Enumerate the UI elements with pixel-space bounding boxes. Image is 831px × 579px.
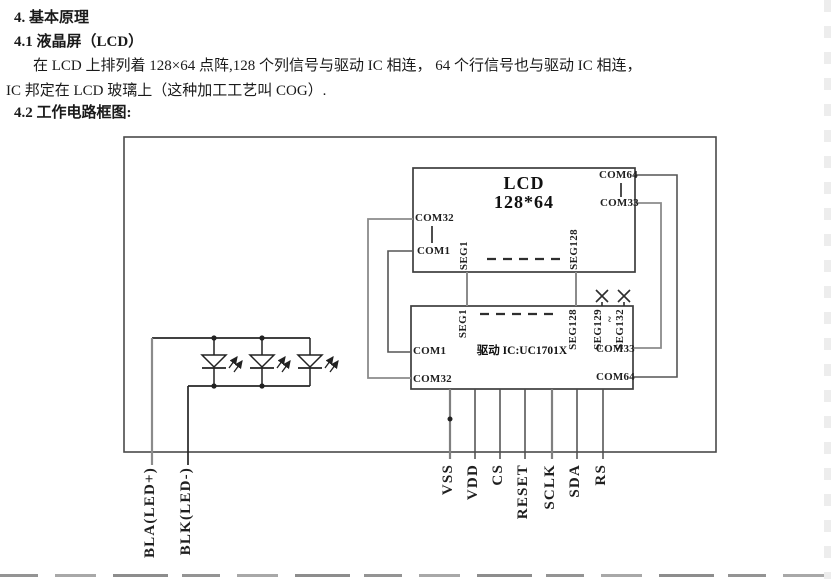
- scan-edge-artifact: [824, 0, 831, 579]
- driver-pin-seg128: SEG128: [568, 309, 579, 350]
- wire-com33: [633, 203, 661, 348]
- lcd-pin-com64: COM64: [599, 170, 638, 181]
- backlight-led-network: [152, 335, 338, 465]
- wire-com1: [388, 251, 413, 352]
- pin-label-vss: VSS: [441, 464, 456, 495]
- driver-pin-com1: COM1: [413, 346, 446, 357]
- interface-pin-leads: [448, 389, 604, 459]
- driver-pin-com33: COM33: [596, 344, 635, 355]
- lcd-pin-com32: COM32: [415, 213, 454, 224]
- pin-label-reset: RESET: [516, 464, 531, 519]
- pin-label-sclk: SCLK: [543, 464, 558, 510]
- page-edge-line: [0, 574, 831, 577]
- x-mark-icon: [596, 290, 630, 306]
- datasheet-page: 4. 基本原理 4.1 液晶屏（LCD） 在 LCD 上排列着 128×64 点…: [0, 0, 831, 579]
- wire-com32: [368, 219, 413, 378]
- driver-pin-com64: COM64: [596, 372, 635, 383]
- pin-label-cs: CS: [491, 464, 506, 486]
- lcd-pin-seg1: SEG1: [459, 241, 470, 270]
- driver-pin-seg1: SEG1: [458, 309, 469, 338]
- wire-com64: [633, 175, 677, 377]
- led-icon: [298, 338, 338, 386]
- lcd-pin-seg128: SEG128: [569, 229, 580, 270]
- pin-label-vdd: VDD: [466, 464, 481, 500]
- lcd-pin-com33: COM33: [600, 198, 639, 209]
- junction-dot: [448, 417, 453, 422]
- pin-label-blk: BLK(LED-): [179, 467, 194, 555]
- driver-pin-com32: COM32: [413, 374, 452, 385]
- pin-label-rs: RS: [594, 464, 609, 486]
- led-icon: [250, 338, 290, 386]
- pin-label-bla: BLA(LED+): [143, 467, 158, 558]
- circuit-diagram: [0, 0, 831, 579]
- led-icon: [202, 338, 242, 386]
- lcd-pin-com1: COM1: [417, 246, 450, 257]
- pin-label-sda: SDA: [568, 464, 583, 498]
